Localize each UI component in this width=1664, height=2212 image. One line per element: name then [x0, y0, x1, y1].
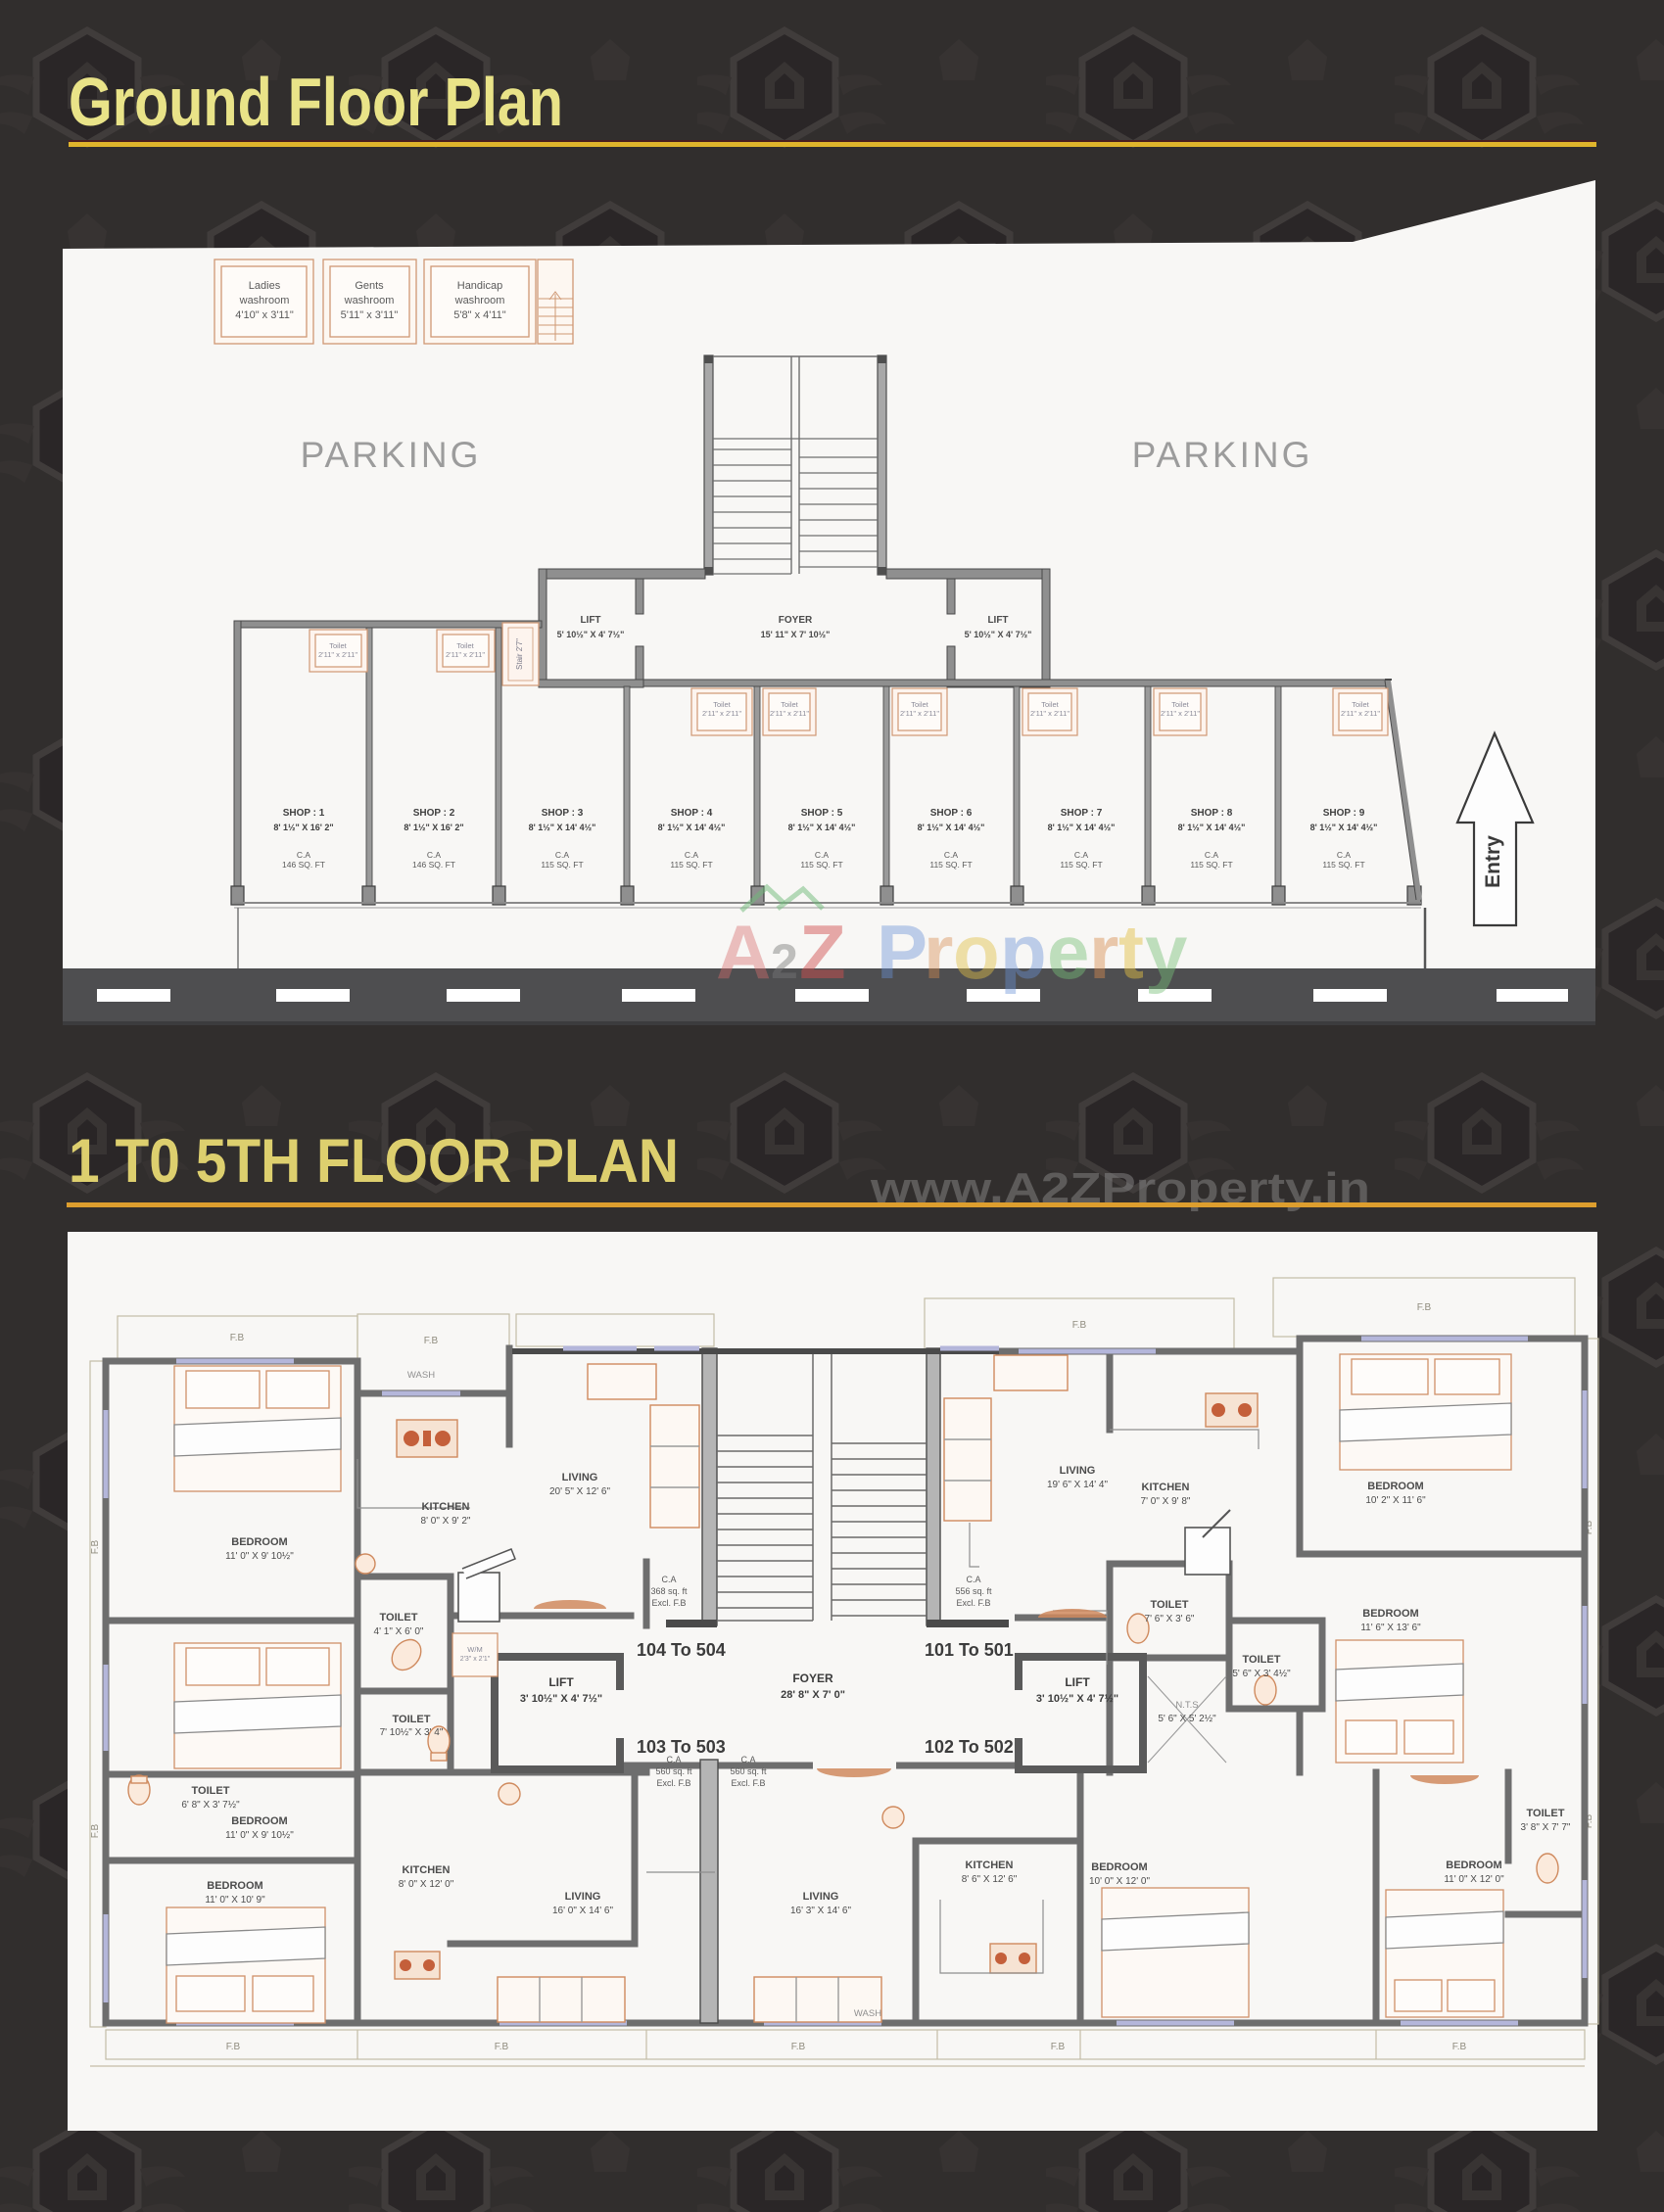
svg-text:SHOP : 7: SHOP : 7 — [1061, 808, 1103, 819]
svg-text:Ground Floor Plan: Ground Floor Plan — [69, 64, 563, 140]
svg-text:7' 10½" X 3' 4": 7' 10½" X 3' 4" — [380, 1727, 444, 1738]
svg-text:C.A: C.A — [815, 850, 830, 860]
svg-text:F.B: F.B — [1072, 1320, 1087, 1331]
svg-text:8' 1½" X 14' 4½": 8' 1½" X 14' 4½" — [788, 823, 856, 832]
svg-text:p: p — [1000, 909, 1047, 995]
svg-text:8' 0" X 12' 0": 8' 0" X 12' 0" — [399, 1879, 454, 1890]
svg-text:Ladies: Ladies — [249, 280, 281, 292]
svg-text:KITCHEN: KITCHEN — [422, 1501, 470, 1513]
svg-text:P: P — [877, 909, 927, 995]
svg-text:LIFT: LIFT — [580, 615, 600, 626]
svg-text:r: r — [1089, 909, 1118, 995]
svg-text:SHOP : 6: SHOP : 6 — [930, 808, 973, 819]
svg-text:2'11" x 2'11": 2'11" x 2'11" — [900, 709, 939, 718]
svg-text:SHOP : 8: SHOP : 8 — [1191, 808, 1233, 819]
svg-text:C.A: C.A — [427, 850, 442, 860]
svg-text:8' 1½" X 16' 2": 8' 1½" X 16' 2" — [273, 823, 333, 832]
svg-text:C.A: C.A — [685, 850, 699, 860]
svg-text:C.A: C.A — [297, 850, 311, 860]
svg-text:5' 10½" X 4' 7½": 5' 10½" X 4' 7½" — [557, 630, 625, 639]
svg-text:F.B: F.B — [1051, 2042, 1066, 2052]
svg-text:115 SQ. FT: 115 SQ. FT — [800, 860, 842, 870]
svg-text:101 To 501: 101 To 501 — [925, 1640, 1014, 1660]
svg-text:TOILET: TOILET — [1527, 1808, 1565, 1819]
svg-text:8' 1½" X 14' 4½": 8' 1½" X 14' 4½" — [658, 823, 726, 832]
svg-text:TOILET: TOILET — [380, 1612, 418, 1624]
svg-text:2'11" x 2'11": 2'11" x 2'11" — [446, 650, 485, 659]
svg-text:Toilet: Toilet — [713, 700, 731, 709]
svg-text:F.B: F.B — [230, 1333, 245, 1343]
svg-text:SHOP : 2: SHOP : 2 — [413, 808, 455, 819]
svg-text:8' 1½" X 14' 4½": 8' 1½" X 14' 4½" — [529, 823, 596, 832]
svg-text:4' 1" X 6' 0": 4' 1" X 6' 0" — [374, 1626, 424, 1637]
svg-text:A: A — [716, 909, 771, 995]
svg-text:5'8" x 4'11": 5'8" x 4'11" — [453, 309, 505, 321]
svg-text:556 sq. ft: 556 sq. ft — [955, 1586, 992, 1596]
svg-text:16' 0" X 14' 6": 16' 0" X 14' 6" — [552, 1906, 614, 1916]
svg-text:LIVING: LIVING — [1060, 1465, 1096, 1477]
svg-text:368 sq. ft: 368 sq. ft — [650, 1586, 688, 1596]
svg-text:2'3" x 2'1": 2'3" x 2'1" — [460, 1656, 491, 1663]
svg-text:15' 11" X 7' 10½": 15' 11" X 7' 10½" — [761, 630, 831, 639]
svg-text:r: r — [924, 909, 953, 995]
svg-text:2'11" x 2'11": 2'11" x 2'11" — [1341, 709, 1380, 718]
svg-text:F.B: F.B — [791, 2042, 806, 2052]
svg-text:FOYER: FOYER — [779, 615, 813, 626]
svg-text:TOILET: TOILET — [1151, 1599, 1189, 1611]
svg-text:KITCHEN: KITCHEN — [966, 1859, 1014, 1871]
svg-text:KITCHEN: KITCHEN — [1142, 1482, 1190, 1493]
svg-text:BEDROOM: BEDROOM — [1367, 1481, 1423, 1492]
svg-text:115 SQ. FT: 115 SQ. FT — [929, 860, 972, 870]
svg-text:Excl. F.B: Excl. F.B — [651, 1598, 686, 1608]
svg-text:C.A: C.A — [966, 1575, 980, 1584]
svg-text:Handicap: Handicap — [457, 280, 502, 292]
svg-text:BEDROOM: BEDROOM — [1362, 1608, 1418, 1620]
svg-text:8' 1½" X 14' 4½": 8' 1½" X 14' 4½" — [1310, 823, 1378, 832]
svg-text:2'11" x 2'11": 2'11" x 2'11" — [318, 650, 357, 659]
svg-text:2'11" x 2'11": 2'11" x 2'11" — [702, 709, 741, 718]
svg-text:7' 0" X 9' 8": 7' 0" X 9' 8" — [1141, 1496, 1191, 1507]
svg-text:Toilet: Toilet — [911, 700, 928, 709]
svg-text:C.A: C.A — [555, 850, 570, 860]
svg-text:3' 10½" X 4' 7½": 3' 10½" X 4' 7½" — [1036, 1693, 1118, 1705]
svg-text:2: 2 — [771, 934, 798, 989]
svg-text:115 SQ. FT: 115 SQ. FT — [1190, 860, 1232, 870]
svg-text:t: t — [1118, 909, 1144, 995]
svg-text:C.A: C.A — [740, 1755, 755, 1765]
svg-text:20' 5" X 12' 6": 20' 5" X 12' 6" — [549, 1486, 611, 1497]
svg-text:KITCHEN: KITCHEN — [403, 1864, 451, 1876]
svg-text:Toilet: Toilet — [1171, 700, 1189, 709]
svg-text:Gents: Gents — [355, 280, 384, 292]
svg-text:2'11" x 2'11": 2'11" x 2'11" — [770, 709, 809, 718]
svg-text:C.A: C.A — [1205, 850, 1219, 860]
svg-text:LIFT: LIFT — [1065, 1675, 1090, 1689]
svg-text:560 sq. ft: 560 sq. ft — [655, 1766, 692, 1776]
svg-text:TOILET: TOILET — [192, 1785, 230, 1797]
svg-text:11' 0" X 9' 10½": 11' 0" X 9' 10½" — [225, 1830, 294, 1841]
svg-text:115 SQ. FT: 115 SQ. FT — [1060, 860, 1102, 870]
svg-text:11' 0" X 10' 9": 11' 0" X 10' 9" — [205, 1895, 265, 1906]
svg-text:BEDROOM: BEDROOM — [207, 1880, 262, 1892]
svg-text:F.B: F.B — [495, 2042, 509, 2052]
svg-text:5' 6" X 5' 2½": 5' 6" X 5' 2½" — [1158, 1714, 1216, 1724]
svg-text:washroom: washroom — [454, 295, 505, 306]
svg-text:1 T0 5TH FLOOR PLAN: 1 T0 5TH FLOOR PLAN — [69, 1127, 679, 1196]
svg-text:BEDROOM: BEDROOM — [231, 1815, 287, 1827]
svg-text:F.B: F.B — [90, 1539, 101, 1554]
svg-text:C.A: C.A — [944, 850, 959, 860]
svg-text:SHOP : 5: SHOP : 5 — [801, 808, 843, 819]
svg-text:10' 0" X 12' 0": 10' 0" X 12' 0" — [1089, 1876, 1151, 1887]
svg-text:560 sq. ft: 560 sq. ft — [730, 1766, 767, 1776]
svg-text:LIVING: LIVING — [803, 1891, 839, 1903]
svg-text:104 To 504: 104 To 504 — [637, 1640, 726, 1660]
svg-text:LIFT: LIFT — [987, 615, 1008, 626]
svg-text:W/M: W/M — [467, 1645, 482, 1654]
svg-text:Toilet: Toilet — [456, 641, 474, 650]
svg-text:FOYER: FOYER — [792, 1671, 833, 1685]
svg-text:16' 3" X 14' 6": 16' 3" X 14' 6" — [790, 1906, 852, 1916]
svg-text:LIVING: LIVING — [562, 1472, 598, 1483]
svg-text:LIVING: LIVING — [565, 1891, 601, 1903]
svg-text:115 SQ. FT: 115 SQ. FT — [1322, 860, 1364, 870]
svg-text:11' 0" X 12' 0": 11' 0" X 12' 0" — [1444, 1874, 1504, 1885]
svg-text:BEDROOM: BEDROOM — [231, 1536, 287, 1548]
svg-text:19' 6" X 14' 4": 19' 6" X 14' 4" — [1047, 1480, 1109, 1490]
svg-text:Z: Z — [799, 909, 846, 995]
svg-text:Excl. F.B: Excl. F.B — [731, 1778, 765, 1788]
svg-text:o: o — [953, 909, 1000, 995]
svg-text:PARKING: PARKING — [301, 435, 482, 475]
svg-text:115 SQ. FT: 115 SQ. FT — [541, 860, 583, 870]
svg-text:C.A: C.A — [1074, 850, 1089, 860]
svg-text:BEDROOM: BEDROOM — [1091, 1861, 1147, 1873]
svg-text:TOILET: TOILET — [393, 1714, 431, 1725]
svg-text:N.T.S: N.T.S — [1175, 1700, 1198, 1711]
svg-text:F.B: F.B — [1452, 2042, 1467, 2052]
svg-text:2'11" x 2'11": 2'11" x 2'11" — [1030, 709, 1070, 718]
svg-text:y: y — [1145, 909, 1187, 995]
svg-text:SHOP : 4: SHOP : 4 — [671, 808, 713, 819]
svg-text:6' 8" X 3' 7½": 6' 8" X 3' 7½" — [181, 1800, 240, 1811]
svg-text:LIFT: LIFT — [548, 1675, 574, 1689]
svg-text:7' 6" X 3' 6": 7' 6" X 3' 6" — [1145, 1614, 1195, 1624]
svg-text:5' 10½" X 4' 7½": 5' 10½" X 4' 7½" — [965, 630, 1032, 639]
svg-text:C.A: C.A — [666, 1755, 681, 1765]
svg-text:F.B: F.B — [226, 2042, 241, 2052]
svg-text:BEDROOM: BEDROOM — [1446, 1859, 1501, 1871]
svg-text:Toilet: Toilet — [1352, 700, 1369, 709]
svg-text:PARKING: PARKING — [1132, 435, 1313, 475]
svg-text:Toilet: Toilet — [781, 700, 798, 709]
svg-text:146 SQ. FT: 146 SQ. FT — [282, 860, 325, 870]
svg-text:3' 10½" X 4' 7½": 3' 10½" X 4' 7½" — [520, 1693, 602, 1705]
svg-text:SHOP : 1: SHOP : 1 — [283, 808, 325, 819]
svg-text:Excl. F.B: Excl. F.B — [656, 1778, 690, 1788]
svg-text:Entry: Entry — [1482, 835, 1504, 888]
svg-text:8' 1½" X 14' 4½": 8' 1½" X 14' 4½" — [1048, 823, 1116, 832]
svg-text:8' 1½" X 14' 4½": 8' 1½" X 14' 4½" — [1178, 823, 1246, 832]
svg-text:Toilet: Toilet — [1041, 700, 1059, 709]
svg-text:Stair 2'7": Stair 2'7" — [515, 638, 524, 670]
svg-text:Toilet: Toilet — [329, 641, 347, 650]
svg-text:WASH: WASH — [407, 1370, 435, 1381]
svg-text:8' 6" X 12' 6": 8' 6" X 12' 6" — [962, 1874, 1018, 1885]
svg-text:102 To 502: 102 To 502 — [925, 1737, 1014, 1757]
svg-text:103 To 503: 103 To 503 — [637, 1737, 726, 1757]
svg-text:4'10" x 3'11": 4'10" x 3'11" — [235, 309, 294, 321]
svg-text:11' 6" X 13' 6": 11' 6" X 13' 6" — [1360, 1623, 1421, 1633]
svg-text:2'11" x 2'11": 2'11" x 2'11" — [1161, 709, 1200, 718]
svg-text:SHOP : 9: SHOP : 9 — [1323, 808, 1365, 819]
svg-text:F.B: F.B — [424, 1336, 439, 1346]
svg-text:F.B: F.B — [1417, 1302, 1432, 1313]
svg-text:8' 1½" X 14' 4½": 8' 1½" X 14' 4½" — [918, 823, 985, 832]
svg-text:washroom: washroom — [239, 295, 290, 306]
svg-text:115 SQ. FT: 115 SQ. FT — [670, 860, 712, 870]
svg-text:146 SQ. FT: 146 SQ. FT — [412, 860, 455, 870]
svg-text:washroom: washroom — [344, 295, 395, 306]
svg-text:SHOP : 3: SHOP : 3 — [542, 808, 584, 819]
svg-text:11' 0" X 9' 10½": 11' 0" X 9' 10½" — [225, 1551, 294, 1562]
svg-text:8' 0" X 9' 2": 8' 0" X 9' 2" — [421, 1516, 471, 1527]
svg-text:Excl. F.B: Excl. F.B — [956, 1598, 990, 1608]
svg-text:WASH: WASH — [854, 2008, 881, 2019]
svg-text:28' 8" X 7' 0": 28' 8" X 7' 0" — [781, 1689, 845, 1701]
svg-text:10' 2" X 11' 6": 10' 2" X 11' 6" — [1365, 1495, 1426, 1506]
svg-text:8' 1½" X 16' 2": 8' 1½" X 16' 2" — [404, 823, 463, 832]
svg-text:C.A: C.A — [1337, 850, 1352, 860]
svg-text:3' 8" X 7' 7": 3' 8" X 7' 7" — [1521, 1822, 1571, 1833]
svg-text:5' 6" X 3' 4½": 5' 6" X 3' 4½" — [1232, 1669, 1291, 1679]
svg-text:e: e — [1047, 909, 1089, 995]
svg-text:F.B: F.B — [90, 1823, 101, 1838]
svg-text:TOILET: TOILET — [1243, 1654, 1281, 1666]
svg-text:5'11" x 3'11": 5'11" x 3'11" — [341, 309, 399, 321]
svg-text:C.A: C.A — [661, 1575, 676, 1584]
